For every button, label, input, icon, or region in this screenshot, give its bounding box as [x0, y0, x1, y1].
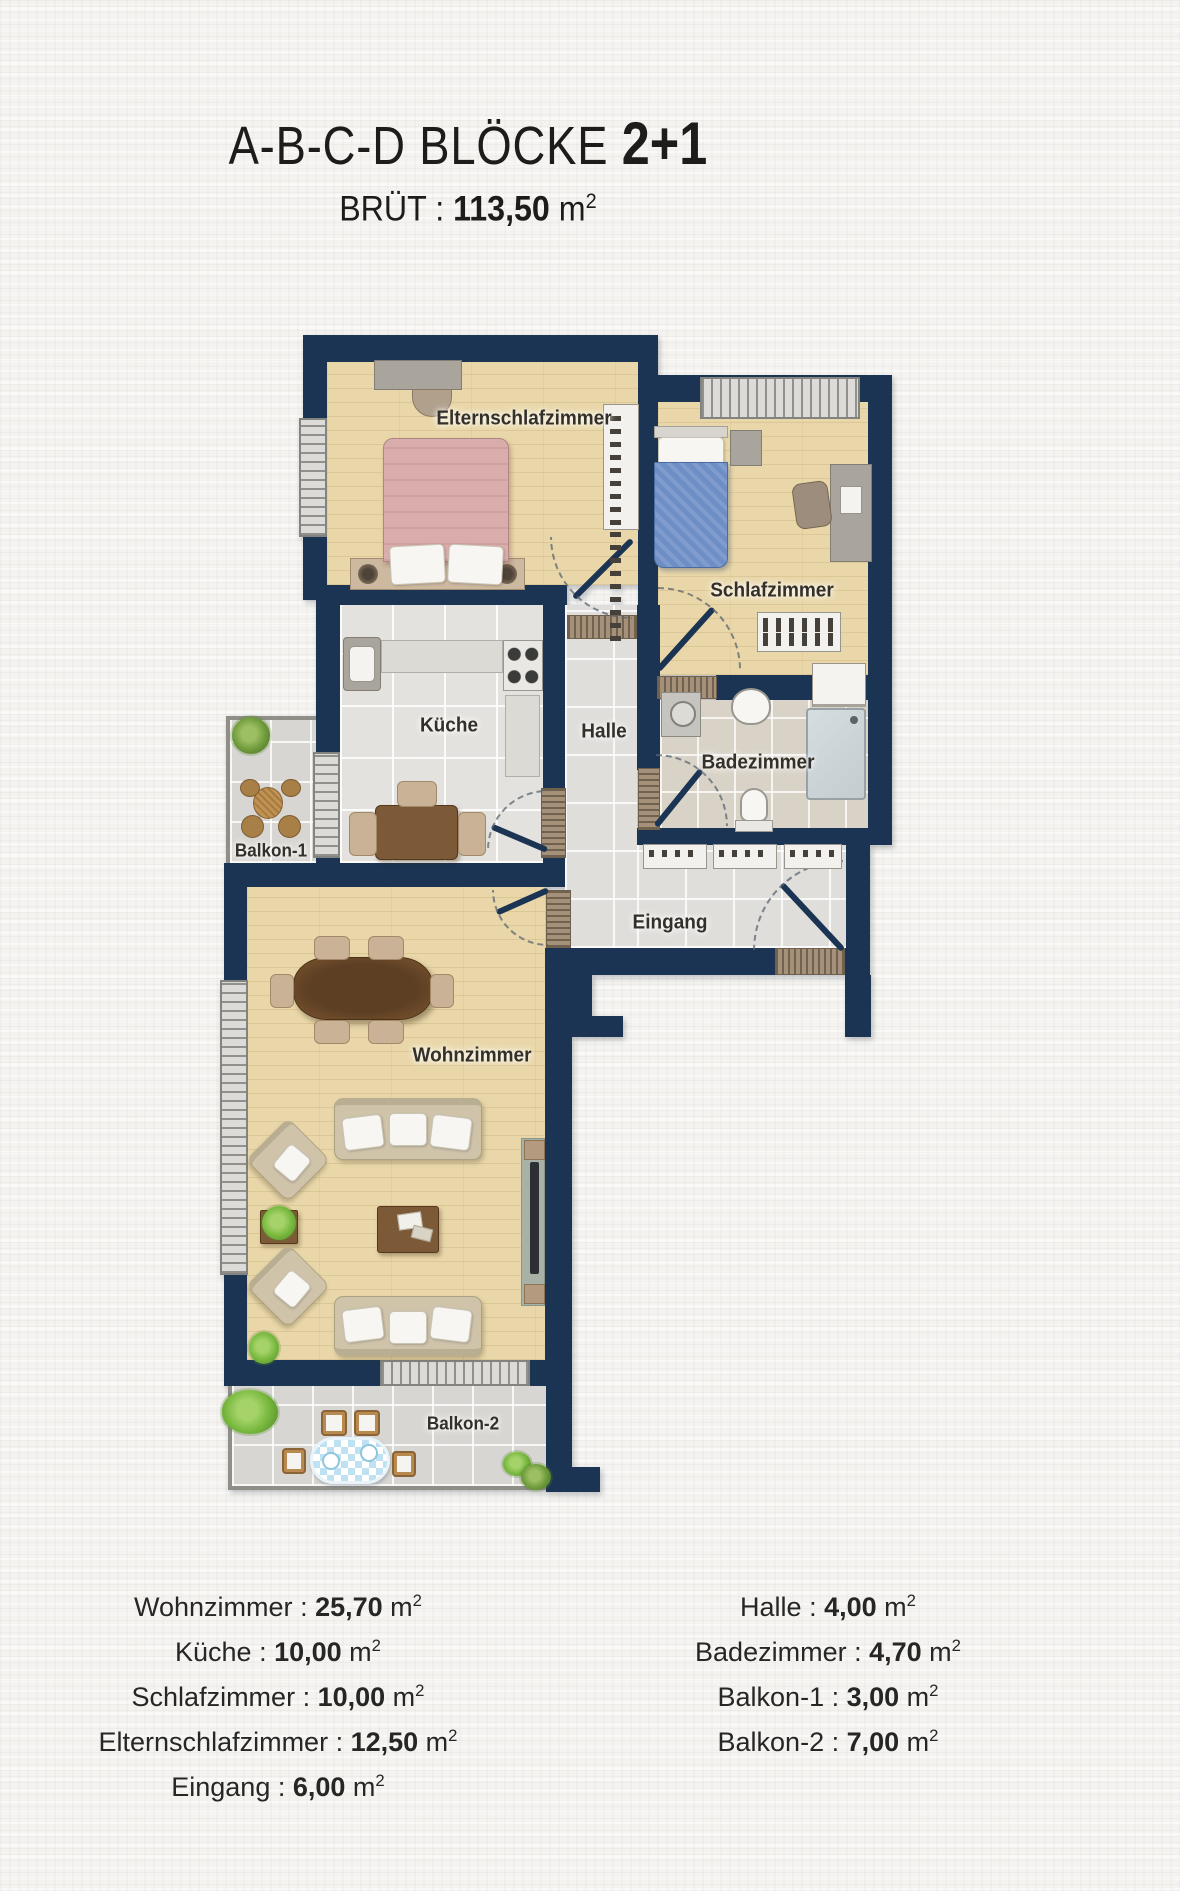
legend-row: Wohnzimmer : 25,70 m2 — [28, 1578, 528, 1623]
room-label-elternschlafzimmer: Elternschlafzimmer — [436, 408, 611, 431]
wall-segment — [567, 975, 592, 1037]
wall-segment — [845, 948, 870, 975]
single-bed — [654, 462, 728, 568]
bed-pillow — [389, 544, 446, 586]
balkon2-slider — [380, 1360, 530, 1386]
dining-table — [293, 957, 433, 1020]
kitchen-counter — [381, 640, 503, 673]
bistro-chair — [240, 779, 260, 797]
balkon1-rail — [226, 716, 230, 864]
sofa-pillow — [341, 1114, 385, 1152]
room-label-eingang: Eingang — [633, 912, 708, 935]
legend-row: Balkon-1 : 3,00 m2 — [578, 1668, 1078, 1713]
plate — [322, 1452, 340, 1470]
desk-paper — [840, 486, 862, 514]
potted-plant — [249, 1332, 279, 1364]
sofa-pillow — [341, 1306, 385, 1344]
media-box — [524, 1284, 545, 1304]
double-bed — [383, 438, 509, 562]
wall-segment — [543, 605, 565, 790]
dining-chair — [270, 974, 294, 1008]
chair-cushion — [359, 1415, 375, 1431]
balkon2-rail — [228, 1486, 550, 1490]
dining-chair — [314, 936, 350, 960]
legend-right-column: Halle : 4,00 m2 Badezimmer : 4,70 m2 Bal… — [578, 1578, 1078, 1758]
wall-segment — [545, 948, 775, 975]
room-label-badezimmer: Badezimmer — [702, 752, 815, 775]
wall-segment — [303, 335, 327, 418]
potted-plant — [232, 717, 270, 754]
room-label-balkon1: Balkon-1 — [235, 841, 307, 862]
wall-segment — [546, 1360, 572, 1470]
window-wohnzimmer — [220, 980, 248, 1275]
toilet — [740, 788, 768, 822]
legend-row: Elternschlafzimmer : 12,50 m2 — [28, 1713, 528, 1758]
bistro-chair — [241, 815, 264, 838]
nightstand — [730, 430, 762, 466]
plate — [360, 1444, 378, 1462]
stove — [503, 640, 543, 691]
floor-balkon2 — [232, 1386, 550, 1486]
toilet-tank — [735, 820, 773, 832]
shoe-cabinet — [643, 844, 707, 869]
gross-area-subtitle: BRÜT : 113,50 m2 — [3, 178, 933, 230]
bistro-chair — [278, 815, 301, 838]
kitchen-chair — [397, 781, 437, 807]
potted-plant — [262, 1206, 296, 1240]
bathroom-sink — [731, 688, 771, 725]
kitchen-table — [375, 805, 458, 860]
legend-row: Halle : 4,00 m2 — [578, 1578, 1078, 1623]
desk — [374, 360, 462, 390]
door-threshold — [546, 890, 571, 948]
floorplan-page: A-B-C-D BLÖCKE 2+1 BRÜT : 113,50 m2 — [0, 0, 1180, 1891]
sofa-pillow — [429, 1114, 473, 1152]
room-label-kueche: Küche — [420, 715, 478, 738]
potted-plant — [222, 1390, 278, 1434]
sofa-pillow — [389, 1311, 427, 1344]
potted-plant — [521, 1464, 551, 1490]
wall-segment — [224, 863, 565, 887]
room-label-schlafzimmer: Schlafzimmer — [710, 580, 834, 603]
room-label-balkon2: Balkon-2 — [427, 1414, 499, 1435]
chair-cushion — [397, 1456, 411, 1472]
tv-screen — [530, 1162, 539, 1274]
wall-segment — [546, 1467, 600, 1492]
dining-chair — [430, 974, 454, 1008]
sofa-pillow — [389, 1113, 427, 1146]
wall-segment — [868, 375, 892, 845]
dining-chair — [314, 1020, 350, 1044]
shoe-rack — [757, 612, 841, 652]
room-label-wohnzimmer: Wohnzimmer — [413, 1045, 532, 1068]
legend-row: Schlafzimmer : 10,00 m2 — [28, 1668, 528, 1713]
chair-cushion — [326, 1415, 342, 1431]
shower-drain — [850, 716, 858, 724]
balkon1-door — [313, 752, 340, 858]
wall-segment — [592, 1016, 623, 1037]
kitchen-sink — [349, 646, 375, 682]
floor-halle — [565, 605, 637, 948]
bistro-chair — [281, 779, 301, 797]
entrance-threshold — [775, 948, 845, 975]
bed-pillow — [447, 544, 504, 586]
shoe-cabinet — [713, 844, 777, 869]
washing-machine-door — [670, 701, 696, 727]
window-elternschlafzimmer — [299, 418, 327, 537]
kitchen-chair — [458, 812, 486, 856]
dining-chair — [368, 936, 404, 960]
sofa-pillow — [429, 1306, 473, 1344]
chair-cushion — [287, 1453, 301, 1469]
kitchen-counter — [505, 695, 540, 777]
bathroom-niche — [812, 663, 866, 707]
wall-segment — [845, 975, 871, 1037]
desk-chair — [791, 480, 833, 531]
dining-chair — [368, 1020, 404, 1044]
legend-left-column: Wohnzimmer : 25,70 m2 Küche : 10,00 m2 S… — [28, 1578, 528, 1803]
page-title: A-B-C-D BLÖCKE 2+1 — [3, 112, 933, 178]
legend-row: Küche : 10,00 m2 — [28, 1623, 528, 1668]
legend-row: Badezimmer : 4,70 m2 — [578, 1623, 1078, 1668]
header: A-B-C-D BLÖCKE 2+1 BRÜT : 113,50 m2 — [3, 112, 933, 230]
bedside-lamp — [358, 564, 378, 584]
room-label-halle: Halle — [581, 721, 626, 744]
wall-segment — [303, 335, 658, 362]
shoe-cabinet — [784, 844, 842, 869]
wall-segment — [224, 1360, 382, 1386]
media-box — [524, 1140, 545, 1160]
window-schlafzimmer — [700, 377, 860, 419]
legend-row: Balkon-2 : 7,00 m2 — [578, 1713, 1078, 1758]
kitchen-chair — [349, 812, 377, 856]
legend-row: Eingang : 6,00 m2 — [28, 1758, 528, 1803]
